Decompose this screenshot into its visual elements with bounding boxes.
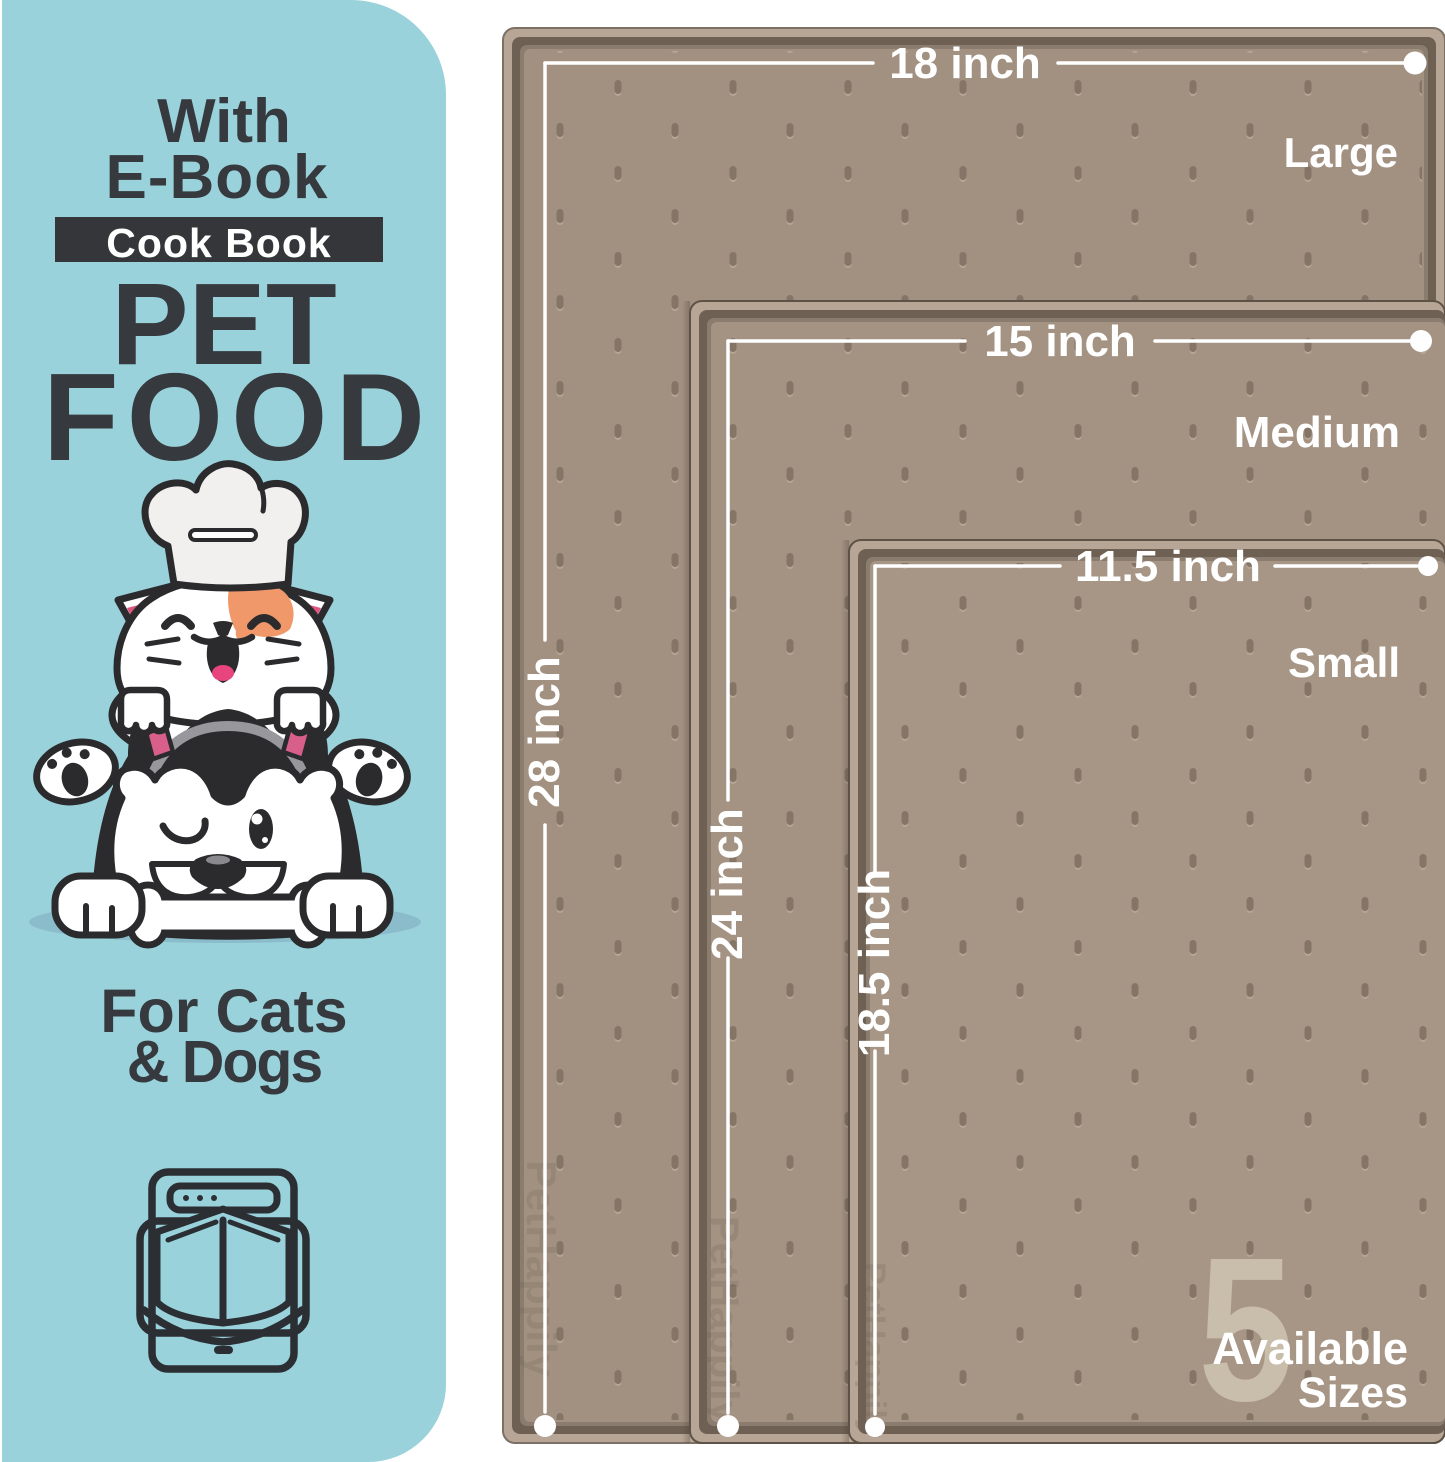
svg-text:Available: Available (1212, 1323, 1408, 1374)
svg-text:Small: Small (1288, 639, 1400, 686)
svg-text:Medium: Medium (1234, 408, 1400, 457)
svg-text:PetHappily: PetHappily (518, 1160, 565, 1378)
svg-text:PetHappily: PetHappily (702, 1216, 746, 1423)
svg-text:24 inch: 24 inch (703, 808, 752, 960)
svg-text:11.5 inch: 11.5 inch (1075, 542, 1261, 591)
svg-text:18.5 inch: 18.5 inch (850, 869, 899, 1057)
svg-text:Large: Large (1284, 129, 1398, 176)
svg-text:15 inch: 15 inch (984, 317, 1136, 366)
svg-text:PetHappily: PetHappily (854, 1262, 892, 1438)
svg-text:Sizes: Sizes (1298, 1369, 1408, 1417)
svg-text:28 inch: 28 inch (520, 656, 569, 808)
svg-text:18 inch: 18 inch (889, 39, 1041, 88)
